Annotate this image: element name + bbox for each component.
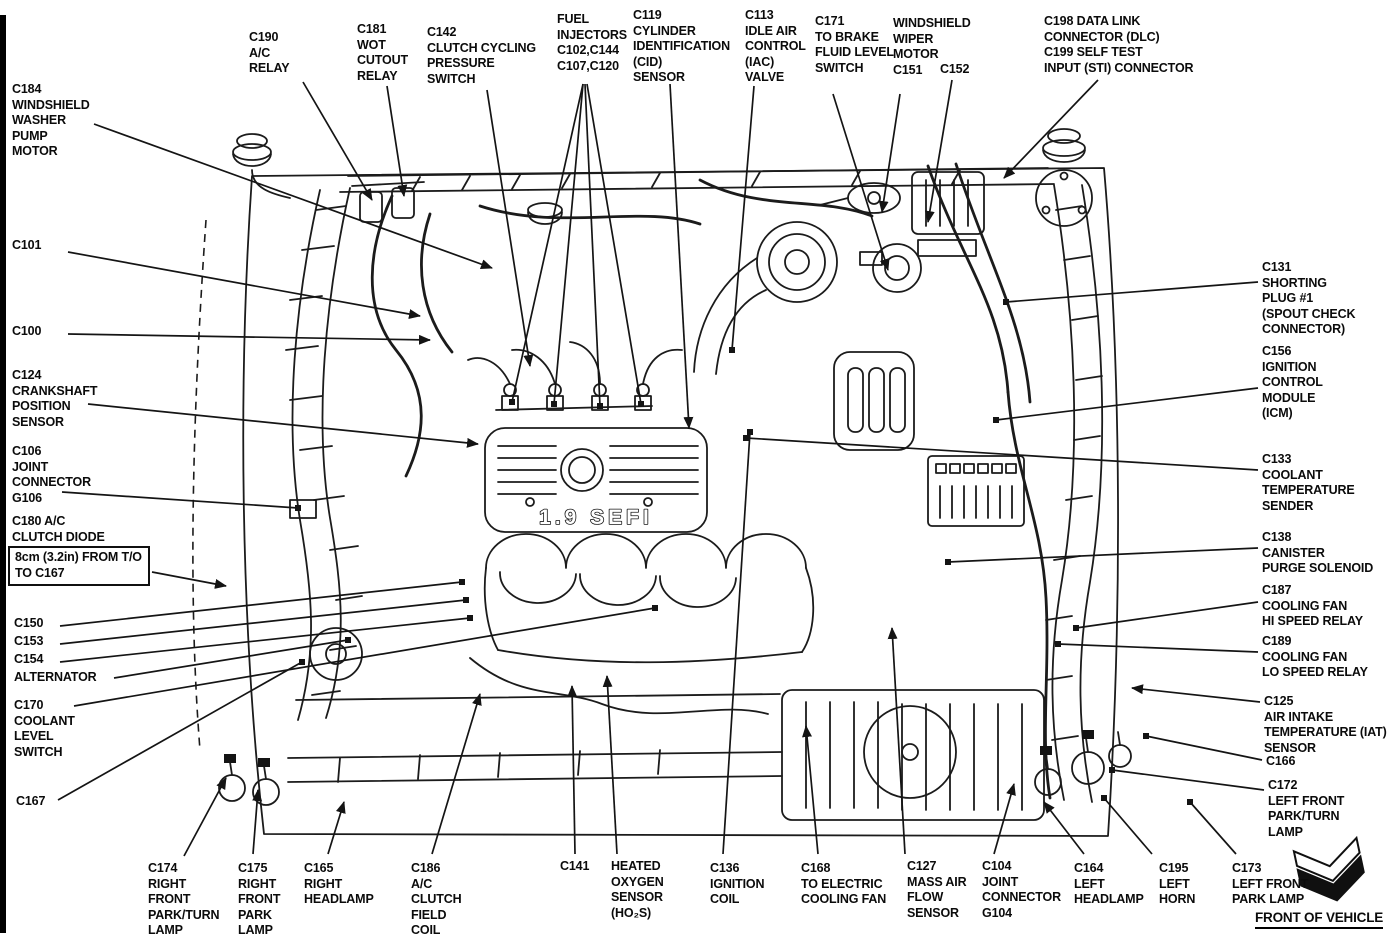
connector-endpoint-c166 <box>1143 733 1149 739</box>
connector-endpoint-c187 <box>1073 625 1079 631</box>
connector-endpoint-c106 <box>295 505 301 511</box>
leader-line-overlay <box>0 0 1392 944</box>
connector-endpoint-fuel-injectors <box>551 401 557 407</box>
leader-line-wiper-motor <box>882 94 900 212</box>
leader-line-c190 <box>303 82 372 200</box>
leader-line-c100 <box>68 334 430 340</box>
connector-endpoint-c170 <box>652 605 658 611</box>
connector-endpoint-alternator <box>345 637 351 643</box>
engine-connector-diagram-page: { "diagram": { "engine_label": "1.9 SEFI… <box>0 0 1392 944</box>
leader-line-c168 <box>806 726 818 854</box>
leader-line-c142 <box>487 90 530 366</box>
leader-line-c141 <box>572 686 575 854</box>
leader-line-note-8cm <box>152 572 226 586</box>
leader-line-c138 <box>948 548 1258 562</box>
connector-endpoint-c136 <box>747 429 753 435</box>
connector-endpoint-c172 <box>1109 767 1115 773</box>
connector-endpoint-c150 <box>459 579 465 585</box>
leader-line-c166 <box>1146 736 1262 760</box>
connector-endpoint-c189 <box>1055 641 1061 647</box>
leader-line-c131 <box>1006 282 1258 302</box>
leader-line-ho2s <box>607 676 617 854</box>
leader-line-c175 <box>253 790 258 854</box>
leader-line-c174 <box>184 778 226 856</box>
leader-line-c187 <box>1076 602 1258 628</box>
leader-line-c136 <box>723 432 750 854</box>
connector-endpoint-c113 <box>729 347 735 353</box>
connector-endpoint-c153 <box>463 597 469 603</box>
connector-endpoint-c173 <box>1187 799 1193 805</box>
leader-line-fuel-injectors <box>554 84 583 404</box>
leader-line-c154 <box>60 618 470 662</box>
leader-line-alternator <box>114 640 348 678</box>
leader-line-c189 <box>1058 644 1258 652</box>
leader-line-c106 <box>62 492 298 508</box>
connector-endpoint-c131 <box>1003 299 1009 305</box>
leader-line-c172 <box>1112 770 1264 790</box>
leader-line-c113 <box>732 86 754 350</box>
connector-endpoint-fuel-injectors <box>597 403 603 409</box>
leader-line-c198-c199 <box>1004 80 1098 178</box>
connector-endpoint-c195 <box>1101 795 1107 801</box>
leader-line-c150 <box>60 582 462 626</box>
leader-line-c164 <box>1044 802 1084 854</box>
leader-line-c173 <box>1190 802 1236 854</box>
leader-line-c195 <box>1104 798 1152 854</box>
leader-line-c156 <box>996 388 1258 420</box>
leader-line-fuel-injectors <box>512 84 583 402</box>
leader-line-c119 <box>670 84 689 428</box>
leader-line-c186 <box>432 694 480 854</box>
leader-line-c133 <box>746 438 1258 470</box>
leader-line-c184 <box>94 124 492 268</box>
leader-line-c165 <box>328 802 344 854</box>
connector-endpoint-c154 <box>467 615 473 621</box>
leader-line-c124 <box>88 404 478 444</box>
leader-line-c127 <box>892 628 905 854</box>
leader-line-fuel-injectors <box>587 84 641 404</box>
leader-line-c167 <box>58 662 302 800</box>
leader-line-c101 <box>68 252 420 316</box>
leader-line-c171 <box>833 94 888 270</box>
leader-line-c170 <box>74 608 655 706</box>
leader-line-c125 <box>1132 688 1260 702</box>
connector-endpoint-fuel-injectors <box>509 399 515 405</box>
leader-line-c152 <box>928 80 952 222</box>
connector-endpoint-fuel-injectors <box>638 401 644 407</box>
connector-endpoint-c138 <box>945 559 951 565</box>
front-of-vehicle-label: FRONT OF VEHICLE <box>1255 910 1383 929</box>
connector-endpoint-c133 <box>743 435 749 441</box>
connector-endpoint-c167 <box>299 659 305 665</box>
leader-line-c153 <box>60 600 466 644</box>
leader-line-c181 <box>387 86 404 196</box>
leader-line-c104 <box>994 784 1014 854</box>
connector-endpoint-c156 <box>993 417 999 423</box>
leader-line-fuel-injectors <box>585 84 600 406</box>
